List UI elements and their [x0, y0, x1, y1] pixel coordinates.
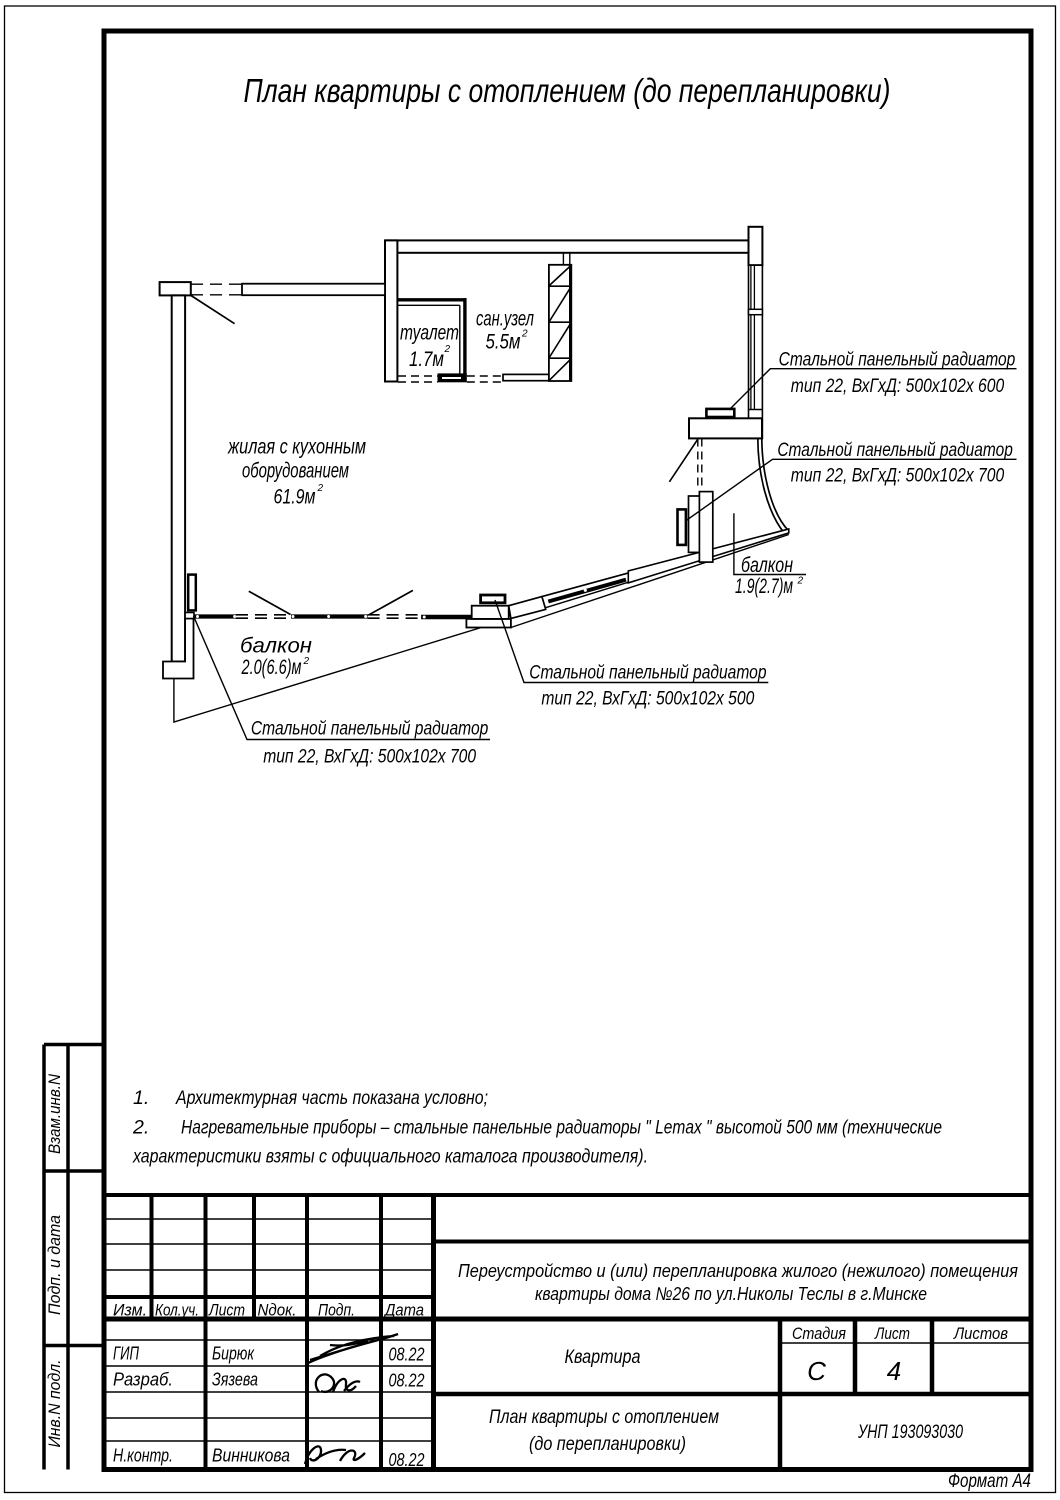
svg-text:Стальной панельный радиатор: Стальной панельный радиатор — [779, 349, 1016, 371]
svg-text:УНП 193093030: УНП 193093030 — [857, 1421, 963, 1443]
svg-text:Винникова: Винникова — [212, 1445, 290, 1466]
svg-text:Лист: Лист — [208, 1302, 245, 1320]
svg-text:4: 4 — [887, 1356, 901, 1386]
svg-text:5.5м: 5.5м — [486, 330, 521, 354]
svg-text:План квартиры с отоплением (до: План квартиры с отоплением (до переплани… — [244, 72, 891, 109]
svg-text:2.: 2. — [132, 1117, 149, 1139]
svg-text:туалет: туалет — [400, 321, 459, 345]
svg-text:квартиры дома №26 по ул.Николы: квартиры дома №26 по ул.Николы Теслы в г… — [535, 1283, 927, 1304]
svg-text:Изм.: Изм. — [113, 1302, 147, 1320]
svg-text:С: С — [807, 1356, 826, 1386]
svg-text:2: 2 — [317, 483, 324, 494]
svg-text:2: 2 — [444, 344, 451, 355]
svg-text:2: 2 — [303, 656, 310, 667]
svg-text:Лист: Лист — [874, 1324, 910, 1343]
svg-text:тип 22, ВхГхД: 500х102х 700: тип 22, ВхГхД: 500х102х 700 — [791, 465, 1005, 487]
svg-text:План квартиры с отоплением: План квартиры с отоплением — [489, 1406, 719, 1428]
svg-text:Нагревательные приборы – сталь: Нагревательные приборы – стальные панель… — [181, 1117, 942, 1139]
svg-text:Переустройство и (или) перепла: Переустройство и (или) перепланировка жи… — [458, 1260, 1018, 1281]
svg-text:Взам.инв.N: Взам.инв.N — [45, 1073, 64, 1154]
svg-text:тип 22, ВхГхД: 500х102х 700: тип 22, ВхГхД: 500х102х 700 — [263, 746, 476, 768]
svg-text:характеристики взяты с официал: характеристики взяты с официального ката… — [132, 1146, 648, 1168]
svg-text:2: 2 — [521, 329, 528, 340]
svg-text:Формат А4: Формат А4 — [948, 1470, 1031, 1492]
svg-text:Стадия: Стадия — [792, 1324, 846, 1343]
svg-text:(до перепланировки): (до перепланировки) — [529, 1433, 686, 1455]
svg-text:08.22: 08.22 — [389, 1344, 426, 1365]
svg-text:ГИП: ГИП — [113, 1343, 139, 1364]
svg-text:Бирюк: Бирюк — [212, 1343, 255, 1364]
svg-text:Архитектурная часть показана у: Архитектурная часть показана условно; — [175, 1087, 488, 1109]
svg-text:жилая с кухонным: жилая с кухонным — [227, 435, 366, 459]
svg-text:61.9м: 61.9м — [274, 484, 316, 508]
svg-text:Листов: Листов — [953, 1324, 1008, 1343]
svg-text:Подп.: Подп. — [318, 1302, 355, 1320]
svg-text:Nдок.: Nдок. — [258, 1302, 297, 1320]
svg-text:Подп. и дата: Подп. и дата — [45, 1215, 64, 1315]
svg-text:08.22: 08.22 — [389, 1370, 426, 1391]
svg-text:1.7м: 1.7м — [409, 347, 444, 371]
svg-text:оборудованием: оборудованием — [242, 459, 349, 483]
svg-text:1.9(2.7)м: 1.9(2.7)м — [735, 574, 793, 598]
svg-text:Стальной панельный радиатор: Стальной панельный радиатор — [777, 439, 1013, 461]
svg-text:Инв.N подл.: Инв.N подл. — [45, 1360, 64, 1448]
svg-text:Н.контр.: Н.контр. — [113, 1445, 173, 1466]
svg-text:Стальной панельный радиатор: Стальной панельный радиатор — [251, 718, 489, 740]
svg-text:Стальной панельный радиатор: Стальной панельный радиатор — [529, 662, 766, 684]
svg-text:2.0(6.6)м: 2.0(6.6)м — [241, 655, 302, 679]
svg-text:Дата: Дата — [383, 1302, 424, 1320]
svg-text:Кол.уч.: Кол.уч. — [155, 1302, 199, 1320]
svg-text:Разраб.: Разраб. — [113, 1369, 173, 1390]
svg-text:тип 22, ВхГхД: 500х102х 600: тип 22, ВхГхД: 500х102х 600 — [791, 375, 1005, 397]
svg-text:балкон: балкон — [240, 634, 312, 658]
svg-text:тип 22, ВхГхД: 500х102х 500: тип 22, ВхГхД: 500х102х 500 — [541, 688, 754, 710]
svg-text:сан.узел: сан.узел — [476, 307, 534, 331]
svg-text:Зязева: Зязева — [212, 1369, 258, 1390]
svg-text:08.22: 08.22 — [389, 1449, 426, 1470]
svg-text:2: 2 — [797, 576, 804, 587]
svg-text:Квартира: Квартира — [565, 1346, 641, 1368]
svg-text:1.: 1. — [133, 1087, 149, 1109]
